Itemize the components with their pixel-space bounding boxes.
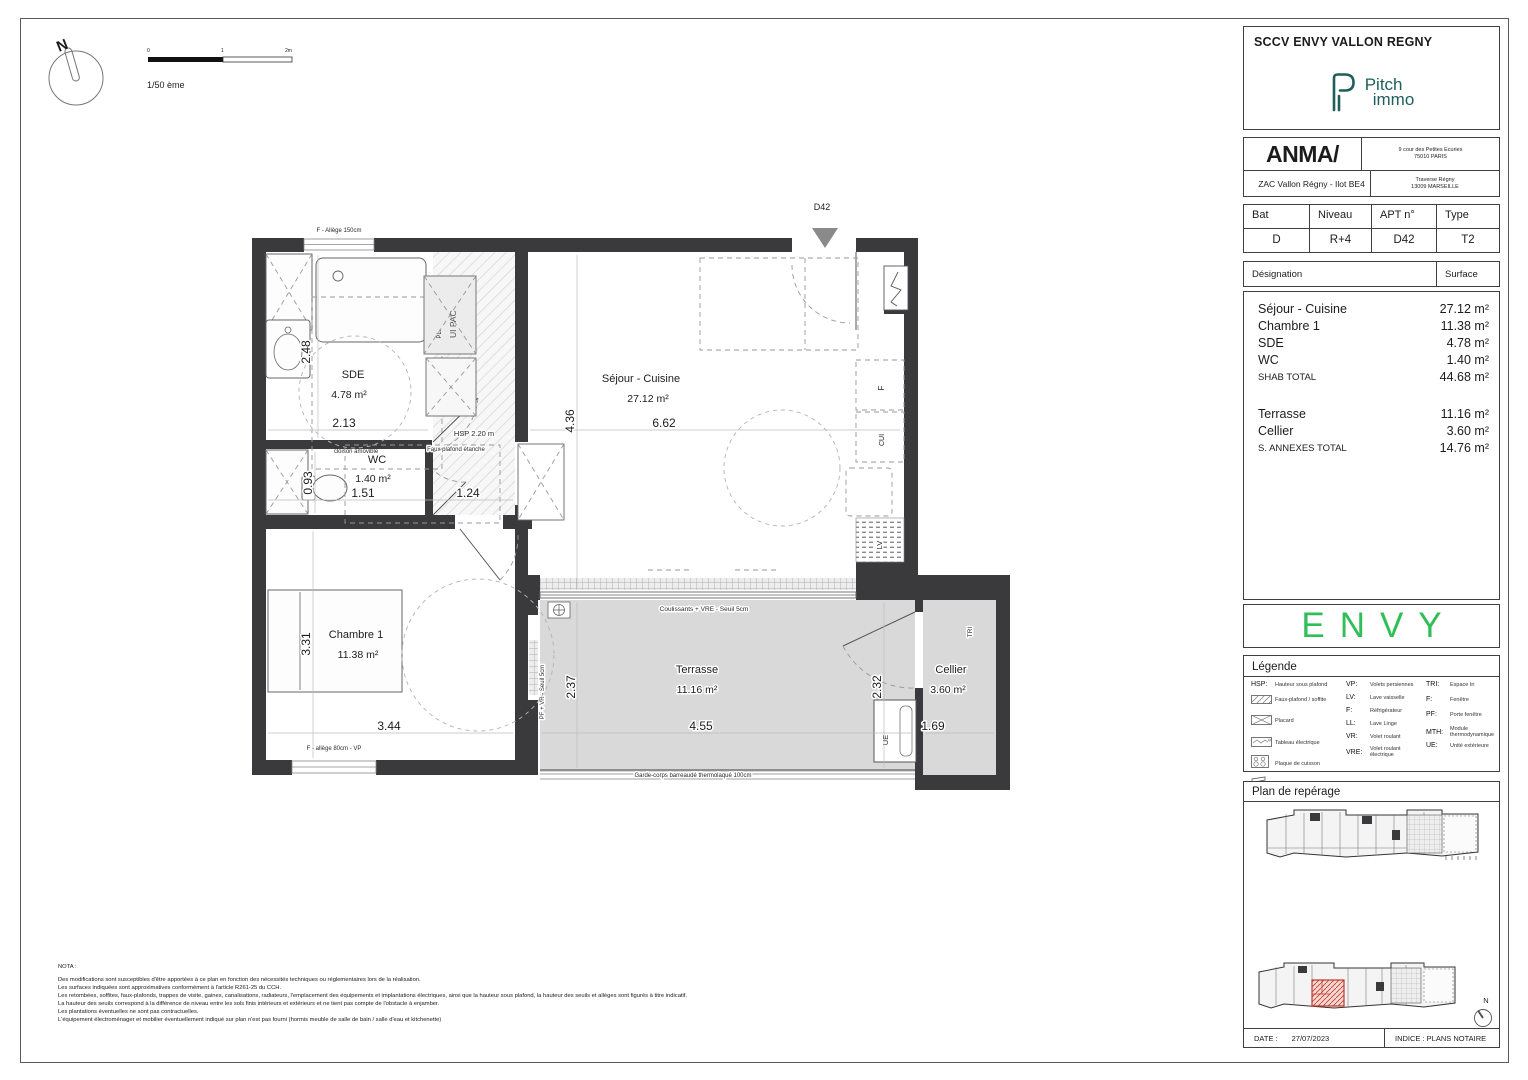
- tri-label: TRI: [967, 627, 974, 638]
- toilet: [313, 475, 347, 501]
- surfaces-header: Désignation Surface: [1243, 261, 1500, 287]
- sejour-label: Séjour - Cuisine: [602, 373, 680, 385]
- unit-header-bat: Bat: [1244, 205, 1309, 228]
- dim-sde-w: 2.13: [332, 416, 356, 430]
- designation-header: Désignation: [1244, 262, 1436, 286]
- legend-abbr: MTH:: [1426, 729, 1450, 736]
- surface-row: SDE 4.78 m²: [1244, 335, 1499, 352]
- nota-line: Les surfaces indiquées sont approximativ…: [58, 984, 1248, 992]
- legend-label: Faux-plafond / soffite: [1275, 697, 1326, 703]
- surface-row: Séjour - Cuisine 27.12 m²: [1244, 301, 1499, 318]
- sde-label: SDE: [342, 369, 365, 381]
- coulissants-label: Coulissants + VRE - Seuil 5cm: [660, 606, 749, 613]
- pac-closet: PL. UI PAC: [424, 276, 476, 354]
- pitch-immo-logo: Pitch immo: [1244, 71, 1499, 113]
- legend-label: Lave Linge: [1370, 721, 1397, 727]
- placard-sejour: [518, 444, 564, 520]
- placard-icon: [1251, 712, 1275, 730]
- fridge-label: F: [877, 385, 886, 390]
- envy-logo: ENVY: [1286, 606, 1456, 646]
- window-top: F - Allège 150cm: [304, 228, 374, 250]
- legend-title: Légende: [1244, 656, 1499, 677]
- dim-hall-w: 1.24: [456, 486, 480, 500]
- chambre-room: Chambre 1 11.38 m²: [268, 529, 554, 731]
- wc-area: 1.40 m²: [355, 473, 391, 485]
- key-plan-upper: [1264, 804, 1482, 868]
- window-chambre-label: F - allège 80cm - VP: [307, 746, 362, 752]
- shab-total-value: 44.68 m²: [1440, 369, 1489, 386]
- nota-line: Les retombées, soffites, faux-plafonds, …: [58, 992, 1248, 1000]
- unit-value-type: T2: [1436, 229, 1499, 252]
- surface-row-name: Séjour - Cuisine: [1258, 301, 1347, 318]
- highlighted-unit: [1312, 980, 1344, 1006]
- surface-header: Surface: [1436, 262, 1499, 286]
- pf-vr-label: PF + VR - Seuil 5cm: [540, 665, 546, 720]
- surfaces-list: Séjour - Cuisine 27.12 m² Chambre 1 11.3…: [1243, 291, 1500, 600]
- legend-abbr: PF:: [1426, 711, 1450, 718]
- annex-total-value: 14.76 m²: [1440, 440, 1489, 457]
- surface-row-name: WC: [1258, 352, 1279, 369]
- window-chambre: F - allège 80cm - VP: [292, 746, 376, 773]
- dim-wc-w: 1.51: [351, 486, 375, 500]
- key-plan-lower: [1256, 958, 1458, 1018]
- unit-value-niveau: R+4: [1309, 229, 1371, 252]
- pl-label: PL.: [437, 329, 443, 338]
- sheet-footer: DATE : 27/07/2023 INDICE : PLANS NOTAIRE: [1244, 1028, 1499, 1047]
- shower-tray: [316, 258, 426, 342]
- nota-line: La hauteur des seuils correspond à la di…: [58, 1000, 1248, 1008]
- nota-line: L'équipement électroménager et mobilier …: [58, 1016, 1248, 1024]
- legend-abbr: F:: [1426, 696, 1450, 703]
- surface-row-value: 4.78 m²: [1447, 335, 1489, 352]
- legend-label: Hauteur sous plafond: [1275, 682, 1327, 688]
- surface-row-value: 11.16 m²: [1441, 406, 1489, 423]
- legend-label: Volets persiennes: [1370, 682, 1413, 688]
- surface-row: Terrasse 11.16 m²: [1244, 406, 1499, 423]
- nota-line: Des modifications sont susceptibles d'êt…: [58, 976, 1248, 984]
- unit-table: Bat Niveau APT n° Type D R+4 D42 T2: [1243, 204, 1500, 253]
- dim-sejour-w: 6.62: [652, 416, 676, 430]
- plaque-cuisson-icon: [1251, 755, 1275, 773]
- nota-title: NOTA :: [58, 963, 1248, 971]
- legend-abbr: TRI:: [1426, 681, 1450, 688]
- shab-total-row: SHAB TOTAL 44.68 m²: [1244, 369, 1499, 386]
- shab-total-label: SHAB TOTAL: [1258, 369, 1316, 386]
- legend-abbr: VRE:: [1346, 749, 1370, 756]
- sejour-area: 27.12 m²: [627, 393, 669, 405]
- surface-row-value: 3.60 m²: [1447, 423, 1489, 440]
- scale-tick-0: 0: [147, 48, 150, 54]
- legend-label: Lave vaisselle: [1370, 695, 1405, 701]
- unit-value-bat: D: [1244, 229, 1309, 252]
- surface-row: Cellier 3.60 m²: [1244, 423, 1499, 440]
- tableau-electrique-icon: [1251, 734, 1275, 752]
- kitchen-counter: [700, 258, 858, 350]
- tableau-electrique: [884, 266, 908, 310]
- unit-header-niveau: Niveau: [1309, 205, 1371, 228]
- reperage-box: Plan de repérage: [1243, 781, 1500, 1048]
- turning-circle-sejour: [724, 410, 840, 526]
- legend-abbr: VP:: [1346, 681, 1370, 688]
- dim-cellier-h: 2.32: [870, 675, 884, 699]
- legend-col-3: TRI:Espace tri F:Fenêtre PF:Porte fenêtr…: [1426, 681, 1498, 752]
- hsp-label: HSP 2.20 m: [454, 429, 494, 438]
- legend-label: Espace tri: [1450, 682, 1474, 688]
- nota-line: Les plantations éventuelles ne sont pas …: [58, 1008, 1248, 1016]
- dim-sde-h: 2.48: [299, 340, 313, 364]
- chambre-area: 11.38 m²: [338, 649, 379, 661]
- legend-label: Module thermodynamique: [1450, 726, 1495, 738]
- scale-label: 1/50 ème: [147, 80, 185, 90]
- date-label: DATE :: [1254, 1034, 1278, 1043]
- faux-plafond-icon: [1251, 691, 1275, 709]
- kitchen-strip: F CUI LV: [846, 360, 904, 562]
- faux-plafond-label: Faux plafond étanche: [427, 447, 485, 453]
- indice-value: INDICE : PLANS NOTAIRE: [1384, 1029, 1499, 1047]
- arch-address-line1: 9 cour des Petites Ecuries: [1399, 147, 1463, 154]
- legend-label: Fenêtre: [1450, 697, 1469, 703]
- surface-row-name: Terrasse: [1258, 406, 1306, 423]
- wc-label: WC: [368, 454, 386, 466]
- cloison-label: cloison amovible: [334, 449, 379, 455]
- surface-row-value: 27.12 m²: [1440, 301, 1489, 318]
- project-header-box: SCCV ENVY VALLON REGNY Pitch immo: [1243, 26, 1500, 130]
- dim-terrasse-h: 2.37: [564, 675, 578, 699]
- scale-tick-1: 1: [221, 48, 224, 54]
- bed: [268, 590, 402, 692]
- dim-sejour-h: 4.36: [563, 409, 577, 433]
- architect-logo: ANMA/: [1244, 138, 1361, 170]
- mini-north-arrow: N: [1470, 994, 1496, 1030]
- terrasse-label: Terrasse: [676, 664, 718, 676]
- cellier-label: Cellier: [935, 664, 967, 676]
- entry-door: D42: [792, 202, 856, 330]
- pitch-immo-icon: [1329, 71, 1356, 113]
- legend-label: Tableau électrique: [1275, 740, 1320, 746]
- architect-box: ANMA/ 9 cour des Petites Ecuries 75010 P…: [1243, 137, 1500, 197]
- mini-north-label: N: [1483, 996, 1488, 1005]
- reperage-title: Plan de repérage: [1244, 782, 1499, 802]
- floor-plan: N 0 1 2m 1/50 ème: [0, 0, 1240, 1080]
- operation-name: ZAC Vallon Régny - Ilot BE4: [1244, 179, 1370, 189]
- dim-chambre-h: 3.31: [299, 632, 313, 656]
- legend-label: Réfrigérateur: [1370, 708, 1402, 714]
- annex-total-row: S. ANNEXES TOTAL 14.76 m²: [1244, 440, 1499, 457]
- legend-abbr: HSP:: [1251, 681, 1275, 688]
- legend-abbr: UE:: [1426, 742, 1450, 749]
- unit-header-type: Type: [1436, 205, 1499, 228]
- garde-corps-label: Garde-corps barreaudé thermolaqué 100cm: [634, 773, 751, 779]
- sde-area: 4.78 m²: [331, 389, 367, 401]
- legend-label: Plaque de cuisson: [1275, 761, 1320, 767]
- terrasse-area: 11.16 m²: [677, 684, 718, 696]
- window-top-label: F - Allège 150cm: [316, 228, 361, 234]
- ui-pac-label: UI PAC: [448, 310, 458, 338]
- legend-box: Légende HSP:Hauteur sous plafond Faux-pl…: [1243, 655, 1500, 772]
- legend-label: Volet roulant électrique: [1370, 746, 1424, 758]
- legend-abbr: VR:: [1346, 733, 1370, 740]
- ue-module: UE: [874, 700, 916, 762]
- surface-row-value: 1.40 m²: [1447, 352, 1489, 369]
- north-arrow: N: [49, 36, 103, 105]
- surface-row-name: SDE: [1258, 335, 1284, 352]
- cuisson-label: CUI: [879, 434, 886, 446]
- legend-col-2: VP:Volets persiennes LV:Lave vaisselle F…: [1346, 681, 1424, 761]
- architect-address: 9 cour des Petites Ecuries 75010 PARIS: [1361, 138, 1499, 170]
- site-address: Traverse Régny 13009 MARSEILLE: [1370, 171, 1499, 196]
- surface-row-name: Chambre 1: [1258, 318, 1320, 335]
- sde-room: SDE 4.78 m²: [266, 254, 442, 514]
- cellier-area: 3.60 m²: [930, 684, 966, 696]
- dim-chambre-w: 3.44: [377, 719, 401, 733]
- surface-row-value: 11.38 m²: [1441, 318, 1489, 335]
- dim-terrasse-w: 4.55: [689, 719, 713, 733]
- surface-row: Chambre 1 11.38 m²: [1244, 318, 1499, 335]
- chambre-label: Chambre 1: [329, 629, 383, 641]
- legend-abbr: F:: [1346, 707, 1370, 714]
- legend-abbr: LV:: [1346, 694, 1370, 701]
- dim-wc-h: 0.93: [301, 471, 315, 495]
- lv-label: LV: [875, 541, 884, 550]
- legend-label: Placard: [1275, 718, 1294, 724]
- legend-label: Volet roulant: [1370, 734, 1401, 740]
- surface-row: WC 1.40 m²: [1244, 352, 1499, 369]
- dim-cellier-w: 1.69: [921, 719, 945, 733]
- legend-label: Porte fenêtre: [1450, 712, 1482, 718]
- surface-row-name: Cellier: [1258, 423, 1293, 440]
- brand-line2: immo: [1373, 91, 1415, 108]
- date-value: 27/07/2023: [1292, 1034, 1330, 1043]
- scale-tick-2: 2m: [285, 48, 292, 54]
- annex-total-label: S. ANNEXES TOTAL: [1258, 440, 1347, 457]
- project-title: SCCV ENVY VALLON REGNY: [1254, 35, 1432, 49]
- unit-header-apt: APT n°: [1371, 205, 1436, 228]
- site-address-line1: Traverse Régny: [1416, 177, 1455, 184]
- scale-bar: 0 1 2m 1/50 ème: [147, 48, 292, 90]
- legend-abbr: LL:: [1346, 720, 1370, 727]
- entry-arrow-icon: [812, 228, 838, 248]
- envy-logo-box: ENVY: [1243, 604, 1500, 648]
- north-label: N: [54, 36, 70, 56]
- entry-label: D42: [814, 202, 831, 212]
- ue-label: UE: [881, 735, 890, 745]
- site-address-line2: 13009 MARSEILLE: [1411, 184, 1459, 191]
- arch-address-line2: 75010 PARIS: [1414, 154, 1447, 161]
- legend-label: Unité extérieure: [1450, 743, 1489, 749]
- nota-block: NOTA : Des modifications sont susceptibl…: [58, 963, 1248, 1024]
- unit-value-apt: D42: [1371, 229, 1436, 252]
